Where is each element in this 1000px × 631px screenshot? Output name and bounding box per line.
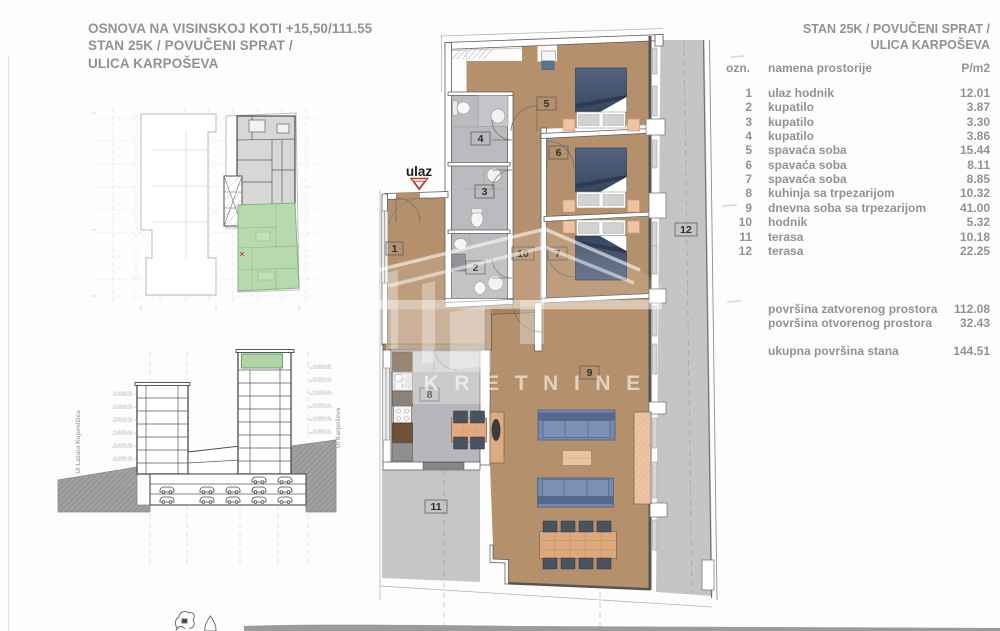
svg-text:+0.00/00.00: +0.00/00.00 (312, 429, 331, 433)
svg-text:+0.00/00.00: +0.00/00.00 (113, 443, 132, 447)
svg-text:5: 5 (544, 98, 550, 110)
svg-text:ulaz: ulaz (406, 164, 433, 179)
svg-text:+0.00/00.00: +0.00/00.00 (113, 417, 132, 421)
svg-text:+0.00/00.00: +0.00/00.00 (113, 404, 132, 408)
svg-text:+0.00/00.00: +0.00/00.00 (113, 469, 132, 473)
svg-text:+0.00/00.00: +0.00/00.00 (312, 364, 331, 368)
svg-text:3: 3 (482, 186, 488, 198)
svg-text:+0.00/00.00: +0.00/00.00 (312, 403, 331, 407)
svg-text:+0.00/00.00: +0.00/00.00 (113, 430, 132, 434)
svg-text:+0.00/00.00: +0.00/00.00 (113, 391, 132, 395)
svg-text:+0.00/00.00: +0.00/00.00 (312, 416, 331, 420)
svg-text:Ul Karpoševa: Ul Karpoševa (335, 407, 342, 448)
svg-text:11: 11 (430, 501, 441, 513)
svg-text:EKRETNINE: EKRETNINE (394, 372, 656, 395)
svg-text:Ul Lazara Kujundžića: Ul Lazara Kujundžića (75, 410, 82, 474)
svg-text:1: 1 (392, 243, 398, 255)
svg-text:+0.00/00.00: +0.00/00.00 (312, 442, 331, 446)
svg-text:+0.00/00.00: +0.00/00.00 (113, 482, 132, 486)
svg-text:6: 6 (556, 147, 562, 159)
svg-text:+0.00/00.00: +0.00/00.00 (312, 377, 331, 381)
svg-text:4: 4 (478, 133, 484, 145)
svg-text:+0.00/00.00: +0.00/00.00 (113, 456, 132, 460)
svg-text:+0.00/00.00: +0.00/00.00 (312, 390, 331, 394)
svg-text:12: 12 (680, 224, 692, 236)
